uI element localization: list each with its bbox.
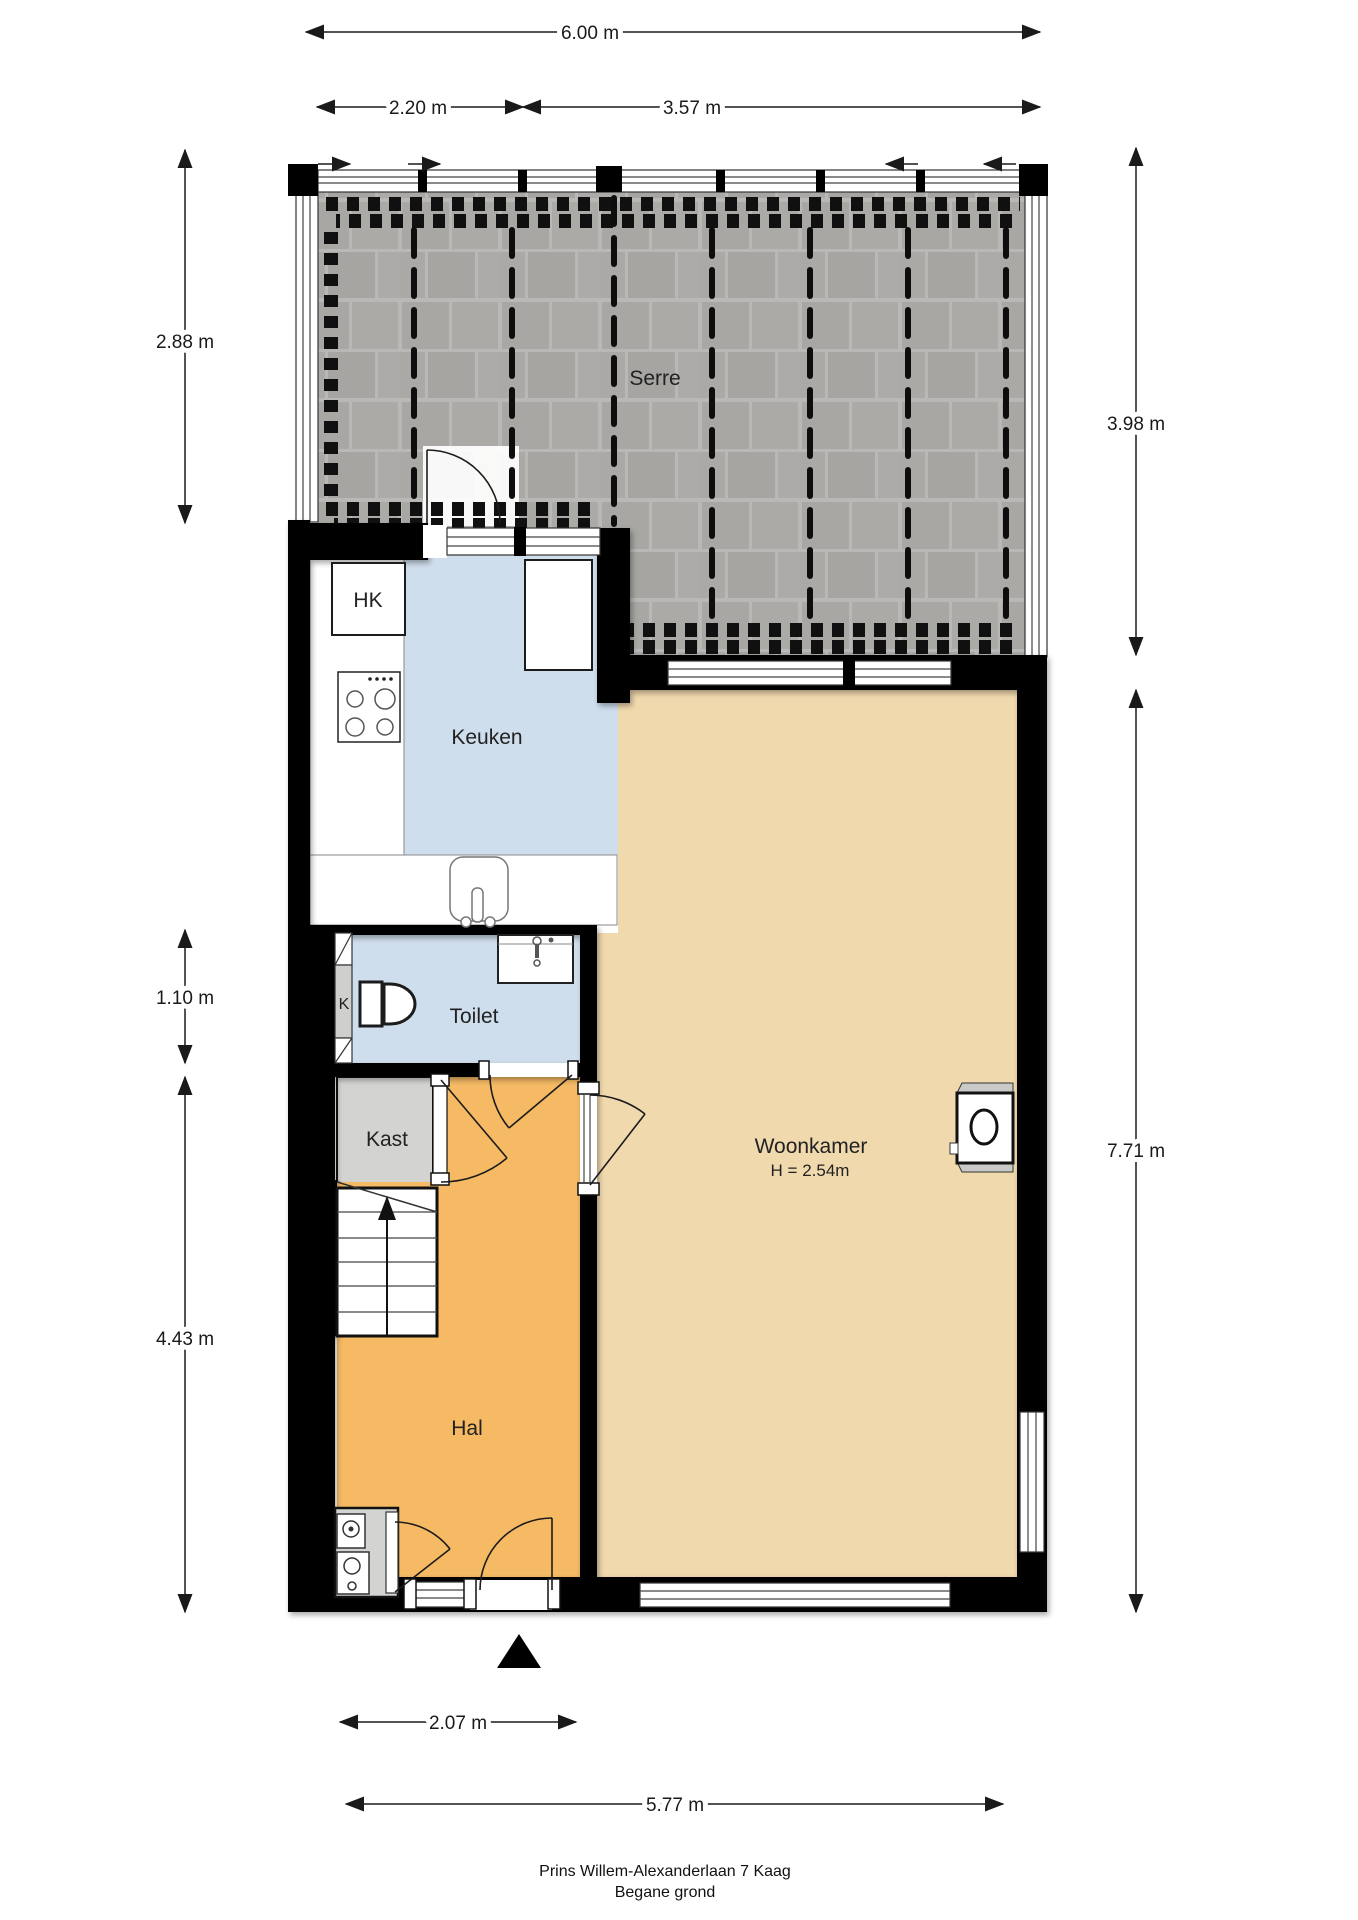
keuken-label: Keuken bbox=[451, 726, 522, 749]
door-opening-woonkamer bbox=[580, 1092, 597, 1184]
hk-cupboard: HK bbox=[332, 563, 405, 635]
door-opening-kast bbox=[433, 1085, 447, 1175]
meter-duct-k: K bbox=[335, 933, 352, 1063]
kast-label: Kast bbox=[366, 1128, 408, 1151]
wall-hal-woonkamer bbox=[580, 933, 597, 1577]
fireplace-icon bbox=[950, 1083, 1013, 1172]
stairs bbox=[337, 1182, 437, 1336]
hk-label: HK bbox=[353, 589, 382, 612]
wall-stairs-side bbox=[310, 1180, 337, 1336]
dim-bottom-entrance: 2.07 m bbox=[429, 1713, 487, 1734]
toilet-icon bbox=[360, 982, 415, 1026]
wall-keuken-toilet bbox=[310, 925, 597, 935]
dim-bottom-total: 5.77 m bbox=[646, 1795, 704, 1816]
serre-floor-right bbox=[598, 192, 1026, 655]
meter-closet bbox=[335, 1508, 398, 1597]
kitchen-sink-icon bbox=[450, 857, 508, 927]
woonkamer-height-label: H = 2.54m bbox=[771, 1161, 850, 1180]
k-label: K bbox=[339, 996, 350, 1013]
dim-width-right: 3.57 m bbox=[663, 98, 721, 119]
entrance-triangle-icon bbox=[497, 1634, 541, 1668]
footer-floor: Begane grond bbox=[615, 1884, 716, 1901]
washbasin-icon bbox=[498, 935, 573, 983]
footer-address: Prins Willem-Alexanderlaan 7 Kaag bbox=[539, 1863, 791, 1880]
floorplan-page: Serre bbox=[0, 0, 1358, 1920]
door-opening-toilet bbox=[483, 1063, 578, 1077]
serre-label: Serre bbox=[629, 367, 680, 390]
dim-right-woonkamer: 7.71 m bbox=[1107, 1141, 1165, 1162]
window-woonkamer-bottom bbox=[640, 1583, 950, 1607]
dim-width-total: 6.00 m bbox=[561, 23, 619, 44]
toilet-label: Toilet bbox=[449, 1005, 498, 1028]
dim-left-hal: 4.43 m bbox=[156, 1329, 214, 1350]
door-opening-front bbox=[470, 1580, 552, 1610]
stove-icon bbox=[338, 672, 400, 742]
wall-serre-keuken bbox=[288, 523, 428, 560]
dim-left-toilet: 1.10 m bbox=[156, 988, 214, 1009]
room-woonkamer-floor bbox=[597, 690, 1017, 1577]
dim-width-left: 2.20 m bbox=[389, 98, 447, 119]
window-entry-sidelight bbox=[415, 1582, 470, 1607]
floorplan-canvas: Serre bbox=[0, 0, 1358, 1920]
hal-label: Hal bbox=[451, 1417, 483, 1440]
dim-left-serre: 2.88 m bbox=[156, 332, 214, 353]
wall-left-upper bbox=[288, 520, 310, 933]
dim-right-serre: 3.98 m bbox=[1107, 414, 1165, 435]
window-serre-woonkamer bbox=[668, 661, 951, 685]
fridge-cabinet-icon bbox=[525, 560, 592, 670]
woonkamer-label: Woonkamer bbox=[755, 1135, 868, 1158]
window-right-wall bbox=[1020, 1412, 1044, 1552]
